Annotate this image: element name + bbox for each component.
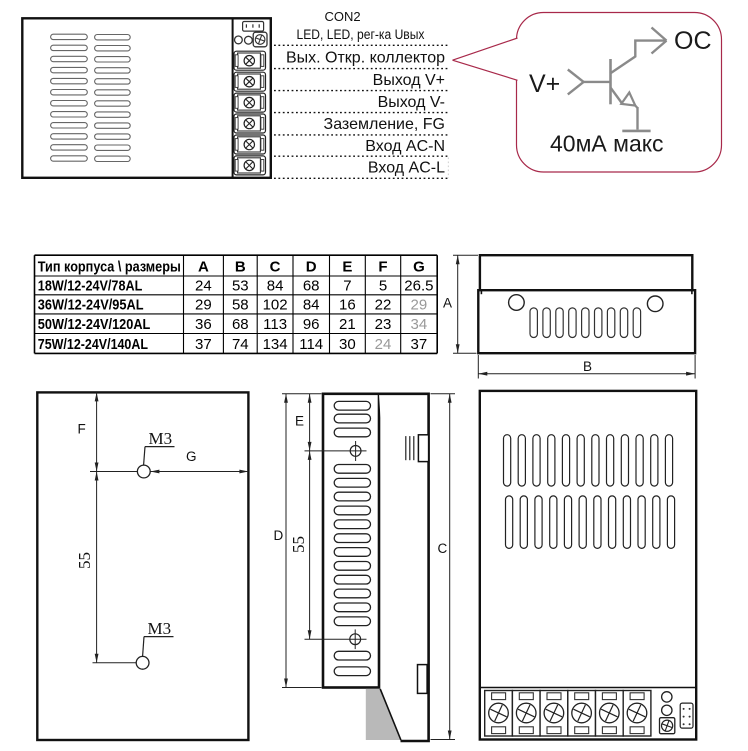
svg-text:Выход V+: Выход V+	[373, 72, 445, 89]
svg-text:V+: V+	[529, 70, 560, 98]
svg-text:34: 34	[411, 316, 428, 333]
svg-text:84: 84	[267, 277, 284, 294]
svg-text:G: G	[413, 259, 425, 276]
svg-text:Заземление, FG: Заземление, FG	[324, 116, 445, 133]
svg-text:Вых. Откр. коллектор: Вых. Откр. коллектор	[286, 49, 445, 66]
svg-text:E: E	[342, 259, 352, 276]
svg-text:84: 84	[303, 297, 320, 314]
svg-text:E: E	[295, 414, 304, 429]
svg-text:16: 16	[339, 297, 356, 314]
svg-text:29: 29	[411, 297, 428, 314]
svg-text:F: F	[78, 422, 86, 437]
svg-text:18W/12-24V/78AL: 18W/12-24V/78AL	[38, 278, 143, 294]
svg-text:23: 23	[375, 316, 392, 333]
svg-text:24: 24	[195, 277, 212, 294]
svg-text:30: 30	[339, 336, 356, 353]
svg-text:37: 37	[411, 336, 428, 353]
svg-text:C: C	[438, 541, 448, 556]
svg-text:B: B	[583, 359, 592, 374]
svg-text:40мА макс: 40мА макс	[550, 131, 664, 157]
svg-text:68: 68	[232, 316, 249, 333]
svg-text:5: 5	[379, 277, 387, 294]
svg-text:36: 36	[195, 316, 212, 333]
svg-text:96: 96	[303, 316, 320, 333]
svg-text:C: C	[270, 259, 281, 276]
svg-text:58: 58	[232, 297, 249, 314]
svg-text:A: A	[198, 259, 209, 276]
svg-text:75W/12-24V/140AL: 75W/12-24V/140AL	[38, 337, 148, 353]
svg-text:37: 37	[195, 336, 212, 353]
svg-text:Выход V-: Выход V-	[378, 94, 445, 111]
svg-text:102: 102	[263, 297, 288, 314]
svg-text:22: 22	[375, 297, 392, 314]
svg-text:26.5: 26.5	[404, 277, 433, 294]
svg-text:36W/12-24V/95AL: 36W/12-24V/95AL	[38, 298, 144, 314]
svg-text:M3: M3	[148, 619, 172, 638]
svg-text:50W/12-24V/120AL: 50W/12-24V/120AL	[38, 317, 151, 333]
svg-text:113: 113	[263, 316, 287, 333]
svg-text:134: 134	[263, 336, 288, 353]
svg-text:Тип корпуса \ размеры: Тип корпуса \ размеры	[38, 259, 181, 276]
svg-text:F: F	[378, 259, 387, 276]
svg-text:D: D	[306, 259, 317, 276]
svg-text:CON2: CON2	[324, 9, 360, 24]
svg-text:Вход AC-N: Вход AC-N	[365, 138, 445, 155]
svg-text:Вход AC-L: Вход AC-L	[368, 160, 445, 177]
svg-text:114: 114	[299, 336, 323, 353]
svg-text:M3: M3	[149, 429, 173, 448]
svg-text:D: D	[274, 528, 284, 543]
svg-text:B: B	[235, 259, 246, 276]
svg-text:53: 53	[232, 277, 249, 294]
svg-text:24: 24	[375, 336, 392, 353]
svg-text:A: A	[443, 296, 452, 311]
svg-text:68: 68	[303, 277, 320, 294]
svg-text:29: 29	[195, 297, 212, 314]
svg-text:LED, LED, рег-ка Uвых: LED, LED, рег-ка Uвых	[297, 27, 425, 42]
svg-text:7: 7	[343, 277, 351, 294]
svg-text:G: G	[186, 449, 197, 464]
svg-text:55: 55	[289, 536, 308, 553]
svg-text:21: 21	[339, 316, 356, 333]
svg-text:74: 74	[232, 336, 249, 353]
svg-text:55: 55	[75, 552, 94, 569]
svg-text:OC: OC	[674, 27, 712, 55]
